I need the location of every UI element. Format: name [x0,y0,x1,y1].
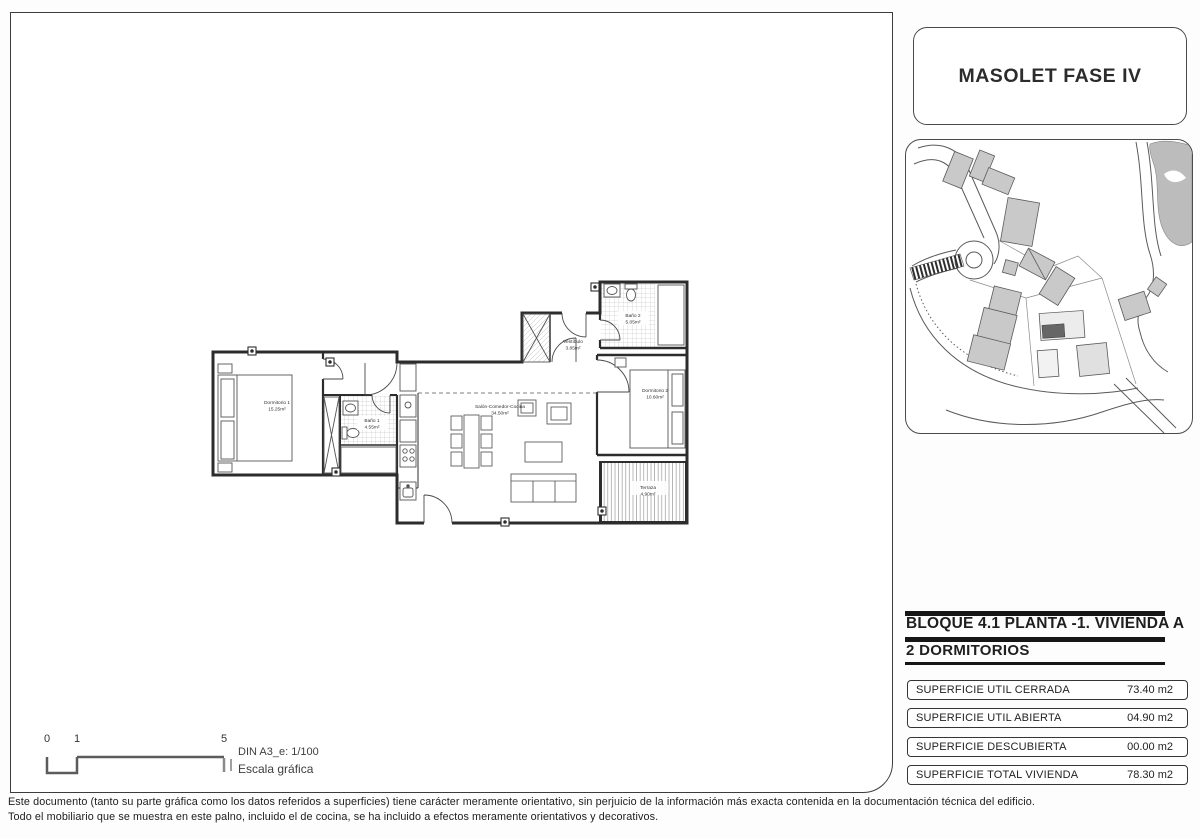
room-label-bano2: Baño 2 [625,313,641,319]
header-bar-bottom [905,662,1165,665]
room-area-dormitorio2: 10.60m² [646,395,664,401]
room-area-bano1: 4.55m² [365,425,380,431]
room-area-dormitorio1: 15.25m² [268,407,286,413]
room-area-vestibulo: 3.85m² [566,346,581,352]
bed-dorm1 [218,364,292,472]
map-buildings [943,150,1167,378]
room-area-salon: 34.50m² [491,411,509,417]
scale-tick-1: 1 [74,733,80,745]
scale-tick-0: 0 [44,733,50,745]
table-row: SUPERFICIE TOTAL VIVIENDA 78.30 m2 [907,765,1188,785]
graphic-scale: 0 1 5 [30,728,240,783]
scale-din-note: DIN A3_e: 1/100 [238,746,319,758]
map-striped-road [910,254,964,280]
table-row: SUPERFICIE UTIL CERRADA 73.40 m2 [907,680,1188,700]
room-label-bano1: Baño 1 [364,418,380,424]
scale-label: Escala gráfica [238,762,313,776]
room-label-vestibulo: Vestíbulo [563,339,583,345]
scale-u-segment [47,757,77,773]
surface-value: 04.90 m2 [1127,712,1187,724]
unit-bedrooms-title: 2 DORMITORIOS [906,642,1030,659]
surface-label: SUPERFICIE TOTAL VIVIENDA [908,769,1078,781]
surface-value: 00.00 m2 [1127,741,1187,753]
table-row: SUPERFICIE UTIL ABIERTA 04.90 m2 [907,708,1188,728]
surface-label: SUPERFICIE UTIL ABIERTA [908,712,1062,724]
room-area-terraza: 4.90m² [641,492,656,498]
dining-set [451,415,492,468]
surface-label: SUPERFICIE UTIL CERRADA [908,684,1070,696]
disclaimer-line1: Este documento (tanto su parte gráfica c… [8,796,1035,808]
surface-value: 73.40 m2 [1127,684,1187,696]
project-title-box: MASOLET FASE IV [913,27,1187,125]
surface-label: SUPERFICIE DESCUBIERTA [908,741,1067,753]
bed-dorm2 [615,358,685,448]
map-green-area [1150,141,1192,245]
surface-value: 78.30 m2 [1127,769,1187,781]
map-highlight-building [1039,310,1085,340]
site-map [906,140,1192,433]
room-label-dormitorio2: Dormitorio 2 [642,388,668,394]
site-map-box [905,139,1193,434]
room-label-terraza: Terraza [640,485,656,491]
scale-tick-5: 5 [221,733,227,745]
table-row: SUPERFICIE DESCUBIERTA 00.00 m2 [907,737,1188,757]
floor-plan: Dormitorio 1 15.25m² Baño 1 4.55m² Salón… [200,275,700,555]
project-title: MASOLET FASE IV [958,65,1141,88]
room-label-dormitorio1: Dormitorio 1 [264,400,290,406]
map-highlight-unit [1042,324,1065,339]
room-area-bano2: 5.05m² [626,320,641,326]
living-set [511,400,576,502]
kitchen-appliances [400,364,416,500]
unit-block-title: BLOQUE 4.1 PLANTA -1. VIVIENDA A [906,615,1188,633]
room-label-salon: Salón-Comedor-Cocina [475,404,525,410]
floor-plan-drawing: Dormitorio 1 15.25m² Baño 1 4.55m² Salón… [200,275,700,555]
disclaimer-line2: Todo el mobiliario que se muestra en est… [8,811,658,823]
